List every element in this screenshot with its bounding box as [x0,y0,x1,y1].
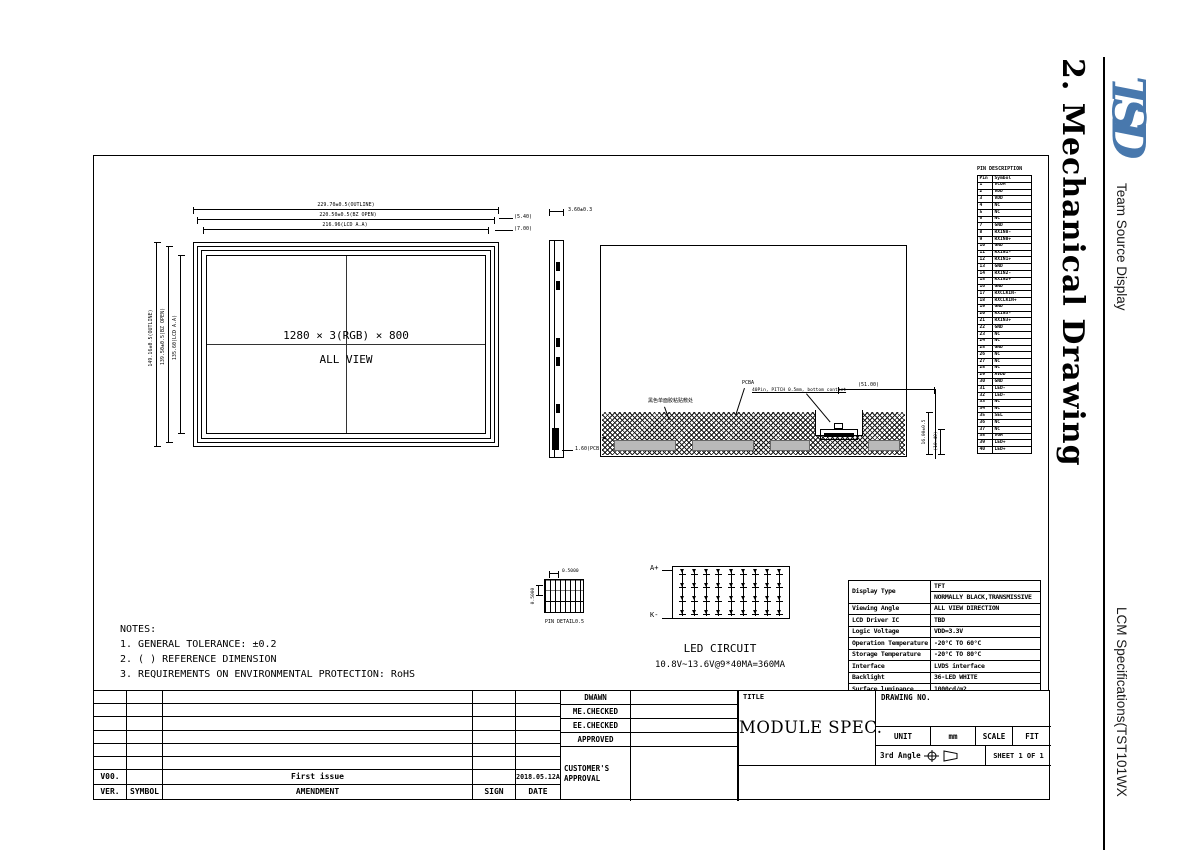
revision-date: 2018.05.12A [516,770,561,784]
dim-line [203,229,489,230]
approval-row-value [631,691,738,705]
note-item: 1. GENERAL TOLERANCE: ±0.2 [120,639,277,650]
led-diode-icon [679,569,686,575]
pin-symbol: NC [993,365,1032,372]
pin-number: 12 [978,257,993,264]
pin-symbol: NC [993,203,1032,210]
wire-line [662,570,672,571]
led-diode-icon [691,610,698,616]
pin-symbol: NC [993,420,1032,427]
pin-table-row: 16 GND [978,284,1032,291]
pin-number: 25 [978,345,993,352]
pin-number: 37 [978,426,993,433]
pin-symbol: RXIN3- [993,311,1032,318]
tape-label [614,440,676,451]
adhesive-area-label: 黑色单面胶粘贴敷处 [648,399,693,405]
module-spec-title: MODULE SPEC. [739,719,876,737]
pin-number: 15 [978,277,993,284]
pin-symbol: RXIN0+ [993,237,1032,244]
dim-line [940,429,941,455]
led-diode-icon [764,583,771,589]
pin-number: 1 [978,182,993,189]
pin-symbol: VDD [993,196,1032,203]
pin-table-row: 14 RXIN2- [978,270,1032,277]
pin-number: 8 [978,230,993,237]
dim-line [156,242,157,447]
empty-footer-cell [739,766,1051,801]
pin-table-row: 36 NC [978,420,1032,427]
pcba-label: PCBA [742,381,754,387]
led-diode-icon [715,583,722,589]
pin-symbol: GND [993,345,1032,352]
pin-table-row: 4 NC [978,203,1032,210]
unit-value-cell: mm [931,727,976,746]
revision-empty-row [94,691,561,704]
led-diode-icon [740,596,747,602]
customer-approval-value [631,747,738,801]
pin-number: 35 [978,413,993,420]
pin-symbol: RXIN3+ [993,318,1032,325]
pin-table-row: 35 SEL [978,413,1032,420]
approval-row-label: ME.CHECKED [561,705,631,719]
leader-line [495,230,513,231]
approval-row-label: APPROVED [561,733,631,747]
pin-detail-figure [544,579,584,613]
pin-symbol: NC [993,209,1032,216]
col-header-date: DATE [516,784,561,799]
col-header-amendment: AMENDMENT [163,784,473,799]
spec-value: LVDS interface [931,661,1041,672]
dim-line [928,412,929,455]
side-view-inner-line [554,241,555,457]
pin-symbol: NC [993,352,1032,359]
dim-label: (5.40) [514,215,532,221]
approval-row-label: EE.CHECKED [561,719,631,733]
spec-row: Interface LVDS interface [849,661,1041,672]
page-canvas: 2. Mechanical Drawing TSD Team Source Di… [0,0,1195,850]
dim-line [193,209,499,210]
pin-table-row: 3 VDD [978,196,1032,203]
led-circuit-spec: 10.8V~13.6V@9*40MA=360MA [635,661,805,671]
led-string [703,569,710,616]
pin-symbol: LED+ [993,440,1032,447]
led-diode-icon [703,583,710,589]
pin-table-row: 1 VCOM [978,182,1032,189]
pin-symbol: NC [993,331,1032,338]
pin-table-row: 10 GND [978,243,1032,250]
pin-symbol: GND [993,223,1032,230]
spec-label: Viewing Angle [849,603,931,614]
led-diode-icon [715,610,722,616]
side-view-component [556,404,560,413]
pin-col-header: Pin [978,176,993,183]
projection-angle-cell: 3rd Angle [876,746,986,766]
note-item: 3. REQUIREMENTS ON ENVIRONMENTAL PROTECT… [120,669,415,680]
pin-table-row: 13 GND [978,264,1032,271]
angle-label: 3rd Angle [880,751,921,760]
pin-symbol: NC [993,359,1032,366]
pin-table-row: 34 NC [978,406,1032,413]
cathode-label: K- [650,612,658,620]
resolution-label: 1280 × 3(RGB) × 800 [246,330,446,342]
led-diode-icon [752,583,759,589]
led-diode-icon [752,596,759,602]
pin-number: 22 [978,325,993,332]
revision-amendment: First issue [163,770,473,784]
pin-symbol: LED+ [993,447,1032,454]
pin-symbol: LED- [993,386,1032,393]
led-diode-icon [764,569,771,575]
pin-table-row: 8 RXIN0- [978,230,1032,237]
dim-label: 139.50±0.5(BZ OPEN) [161,269,167,404]
spec-label: Logic Voltage [849,626,931,637]
pin-number: 7 [978,223,993,230]
pin-symbol: LED- [993,393,1032,400]
leader-line [499,218,513,219]
pin-symbol: NC [993,406,1032,413]
section-title: 2. Mechanical Drawing [1056,58,1089,467]
pin-table-row: 11 RXIN1- [978,250,1032,257]
dim-line [549,573,559,574]
revision-empty-row [94,730,561,743]
spec-row: Operation Temperature -20°C TO 60°C [849,638,1041,649]
pin-table-row: 2 VDD [978,189,1032,196]
pin-symbol: NC [993,216,1032,223]
led-diode-icon [679,583,686,589]
spec-row: LCD Driver IC TBD [849,615,1041,626]
pin-table-title: PIN DESCRIPTION [977,167,1022,173]
pin-number: 24 [978,338,993,345]
side-view-component [556,338,560,347]
pin-symbol: RXIN1+ [993,257,1032,264]
spec-label: Operation Temperature [849,638,931,649]
dim-line [838,389,935,390]
scale-value-cell: FIT [1013,727,1051,746]
pin-number: 2 [978,189,993,196]
led-diode-icon [740,569,747,575]
pin-table-row: 25 GND [978,345,1032,352]
tape-label [692,440,754,451]
col-header-ver: VER. [94,784,127,799]
pin-number: 6 [978,216,993,223]
col-header-symbol: SYMBOL [127,784,163,799]
led-diode-icon [703,569,710,575]
led-diode-icon [776,569,783,575]
pin-number: 34 [978,406,993,413]
dim-label: (7.00) [514,227,532,233]
third-angle-symbol-icon [924,749,960,763]
pin-number: 33 [978,399,993,406]
led-diode-icon [776,583,783,589]
connector-note-label: 40Pin, PITCH 0.5mm, bottom contact [752,388,846,393]
led-diode-icon [752,569,759,575]
pin-symbol: GND [993,264,1032,271]
led-diode-icon [776,610,783,616]
spec-row: Logic Voltage VDD=3.3V [849,626,1041,637]
side-view-component [556,357,560,366]
pin-number: 21 [978,318,993,325]
pin-table-row: 30 GND [978,379,1032,386]
led-string [715,569,722,616]
pin-table-row: 12 RXIN1+ [978,257,1032,264]
pin-number: 19 [978,304,993,311]
revision-symbol [127,770,163,784]
dim-label: 229.70±0.5(OUTLINE) [286,203,406,209]
pin-number: 28 [978,365,993,372]
led-diode-icon [728,610,735,616]
unit-label-cell: UNIT [876,727,931,746]
pin-table-row: 17 RXCLKIN- [978,291,1032,298]
revision-ver: V00. [94,770,127,784]
pin-table-row: 29 AVDD [978,372,1032,379]
note-item: 2. ( ) REFERENCE DIMENSION [120,654,277,665]
pin-table-row: 38 VGH [978,433,1032,440]
led-diode-icon [715,569,722,575]
spec-label: Backlight [849,672,931,683]
drawing-no-label: DRAWING NO. [881,694,931,702]
pin-table-row: 24 NC [978,338,1032,345]
dim-label: 216.96(LCD A.A) [290,223,400,229]
led-diode-icon [691,596,698,602]
pin-symbol: RXCLKIN- [993,291,1032,298]
pin-table-row: 21 RXIN3+ [978,318,1032,325]
notes-heading: NOTES: [120,624,156,635]
customer-approval-label: CUSTOMER'S APPROVAL [561,747,631,801]
revision-empty-row [94,743,561,756]
led-circuit-figure [672,566,790,619]
spec-value: VDD=3.3V [931,626,1041,637]
pin-number: 9 [978,237,993,244]
revision-sign [473,770,516,784]
pin-table-row: 22 GND [978,325,1032,332]
fpc-connector-tab [834,423,843,429]
pin-number: 17 [978,291,993,298]
pin-symbol: RXIN2+ [993,277,1032,284]
led-string [752,569,759,616]
pin-symbol: GND [993,325,1032,332]
spec-row: Display Type TFT [849,581,1041,592]
spec-table: Display Type TFT NORMALLY BLACK,TRANSMIS… [848,580,1041,707]
led-diode-icon [691,569,698,575]
dim-label: (51.00) [858,383,879,389]
spec-value: TFT [931,581,1041,592]
pin-number: 14 [978,270,993,277]
pin-symbol: VDD [993,189,1032,196]
company-name: Team Source Display [1113,183,1128,311]
led-diode-icon [764,596,771,602]
spec-value: -20°C TO 80°C [931,649,1041,660]
pin-symbol: GND [993,284,1032,291]
pin-number: 3 [978,196,993,203]
spec-value: NORMALLY BLACK,TRANSMISSIVE [931,592,1041,603]
pin-symbol: VCOM [993,182,1032,189]
pin-number: 10 [978,243,993,250]
pin-symbol: RXCLKIN+ [993,298,1032,305]
led-circuit-caption: LED CIRCUIT [650,643,790,655]
pin-table-row: 6 NC [978,216,1032,223]
pin-number: 13 [978,264,993,271]
side-view-profile [549,240,564,458]
spec-label: Interface [849,661,931,672]
pin-number: 32 [978,393,993,400]
spec-label: Storage Temperature [849,649,931,660]
pin-number: 26 [978,352,993,359]
revision-empty-row [94,704,561,717]
pin-symbol: GND [993,243,1032,250]
tsd-logo-icon: TSD [1106,76,1150,147]
spec-value: TBD [931,615,1041,626]
spec-value: -20°C TO 60°C [931,638,1041,649]
pin-table-row: 33 NC [978,399,1032,406]
led-string [764,569,771,616]
led-diode-icon [752,610,759,616]
tape-label [868,440,900,451]
pin-symbol: NC [993,338,1032,345]
sheet-cell: SHEET 1 OF 1 [986,746,1051,766]
spec-value: ALL VIEW DIRECTION [931,603,1041,614]
led-diode-icon [691,583,698,589]
col-header-sign: SIGN [473,784,516,799]
pin-number: 5 [978,209,993,216]
pin-number: 23 [978,331,993,338]
pin-table-row: 32 LED- [978,393,1032,400]
pin-number: 38 [978,433,993,440]
dim-label: 135.60(LCD A.A) [173,275,179,400]
dim-label: 1.60(PCB) [575,447,602,453]
pin-table-row: 40 LED+ [978,447,1032,454]
led-diode-icon [776,596,783,602]
sidebar-divider [1103,57,1105,850]
led-string [691,569,698,616]
dim-line [168,246,169,443]
spec-label: Display Type [849,581,931,604]
revision-empty-row [94,717,561,730]
spec-row: Storage Temperature -20°C TO 80°C [849,649,1041,660]
pin-number: 16 [978,284,993,291]
spec-label: LCD Driver IC [849,615,931,626]
led-diode-icon [728,583,735,589]
revision-table: V00. First issue 2018.05.12A VER. SYMBOL… [93,690,561,800]
pin-table-row: 9 RXIN0+ [978,237,1032,244]
led-diode-icon [679,596,686,602]
led-string [740,569,747,616]
pin-symbol: NC [993,399,1032,406]
pin-table-row: 23 NC [978,331,1032,338]
pin-symbol: NC [993,426,1032,433]
pin-detail-caption: PIN DETAIL0.5 [527,620,602,626]
led-diode-icon [764,610,771,616]
pin-number: 27 [978,359,993,366]
side-view-pcb [552,428,559,450]
center-line-horizontal [207,344,485,345]
all-view-label: ALL VIEW [246,354,446,366]
led-diode-icon [679,610,686,616]
pin-symbol: RXIN0- [993,230,1032,237]
pin-symbol: RXIN1- [993,250,1032,257]
pin-number: 20 [978,311,993,318]
led-string [728,569,735,616]
dim-line [538,585,539,596]
pin-number: 40 [978,447,993,454]
dim-label: 220.50±0.5(BZ OPEN) [288,213,408,219]
pin-table: Pin Symbol 1 VCOM 2 VDD 3 VDD [977,175,1032,454]
anode-label: A+ [650,565,658,573]
dim-label: 0.5000 [562,569,579,574]
side-view-component [556,281,560,290]
arrow-icon: ◄ [601,434,606,443]
pin-table-row: 15 RXIN2+ [978,277,1032,284]
approval-row-value [631,733,738,747]
spec-value: 36-LED WHITE [931,672,1041,683]
pin-table-row: 20 RXIN3- [978,311,1032,318]
pin-table-row: 7 GND [978,223,1032,230]
dim-label: 3.60±0.3 [568,208,592,214]
pin-number: 31 [978,386,993,393]
pin-symbol: AVDD [993,372,1032,379]
dim-line [197,219,495,220]
pin-table-row: 18 RXCLKIN+ [978,298,1032,305]
pin-number: 4 [978,203,993,210]
led-diode-icon [703,596,710,602]
fpc-connector-contacts [824,433,854,437]
led-string [776,569,783,616]
doc-title: LCM Specifications(TST101WX [1113,607,1128,850]
pin-table-row: 37 NC [978,426,1032,433]
tape-label [770,440,810,451]
leader-line [562,450,573,451]
led-diode-icon [728,596,735,602]
approval-row-value [631,705,738,719]
dim-label: 149.16±0.5(OUTLINE) [149,268,155,408]
pin-table-row: 5 NC [978,209,1032,216]
pin-number: 39 [978,440,993,447]
title-label: TITLE [743,694,764,702]
pin-number: 29 [978,372,993,379]
approval-row-label: DWAWN [561,691,631,705]
led-diode-icon [740,583,747,589]
pin-number: 36 [978,420,993,427]
led-diode-icon [740,610,747,616]
pin-table-row: 39 LED+ [978,440,1032,447]
title-block: DWAWN ME.CHECKED EE.CHECKED APPROVED CUS… [560,690,1050,800]
spec-row: Backlight 36-LED WHITE [849,672,1041,683]
led-diode-icon [728,569,735,575]
spec-row: Viewing Angle ALL VIEW DIRECTION [849,603,1041,614]
pin-table-row: 31 LED- [978,386,1032,393]
revision-entry-row: V00. First issue 2018.05.12A [94,770,561,784]
pin-symbol: GND [993,304,1032,311]
pin-table-row: 28 NC [978,365,1032,372]
dim-label: (10.40) [934,427,939,455]
revision-empty-row [94,757,561,770]
dim-line [180,255,181,434]
scale-label-cell: SCALE [976,727,1013,746]
dim-label: 0.5000 [531,584,536,608]
dim-line [549,211,564,212]
pin-number: 11 [978,250,993,257]
revision-header-row: VER. SYMBOL AMENDMENT SIGN DATE [94,784,561,799]
approval-row-value [631,719,738,733]
pin-symbol: GND [993,379,1032,386]
led-string [679,569,686,616]
pin-symbol: SEL [993,413,1032,420]
pin-number: 18 [978,298,993,305]
led-diode-icon [715,596,722,602]
side-view-component [556,262,560,271]
symbol-col-header: Symbol [993,176,1032,183]
pin-table-row: 27 NC [978,359,1032,366]
pin-table-row: 26 NC [978,352,1032,359]
